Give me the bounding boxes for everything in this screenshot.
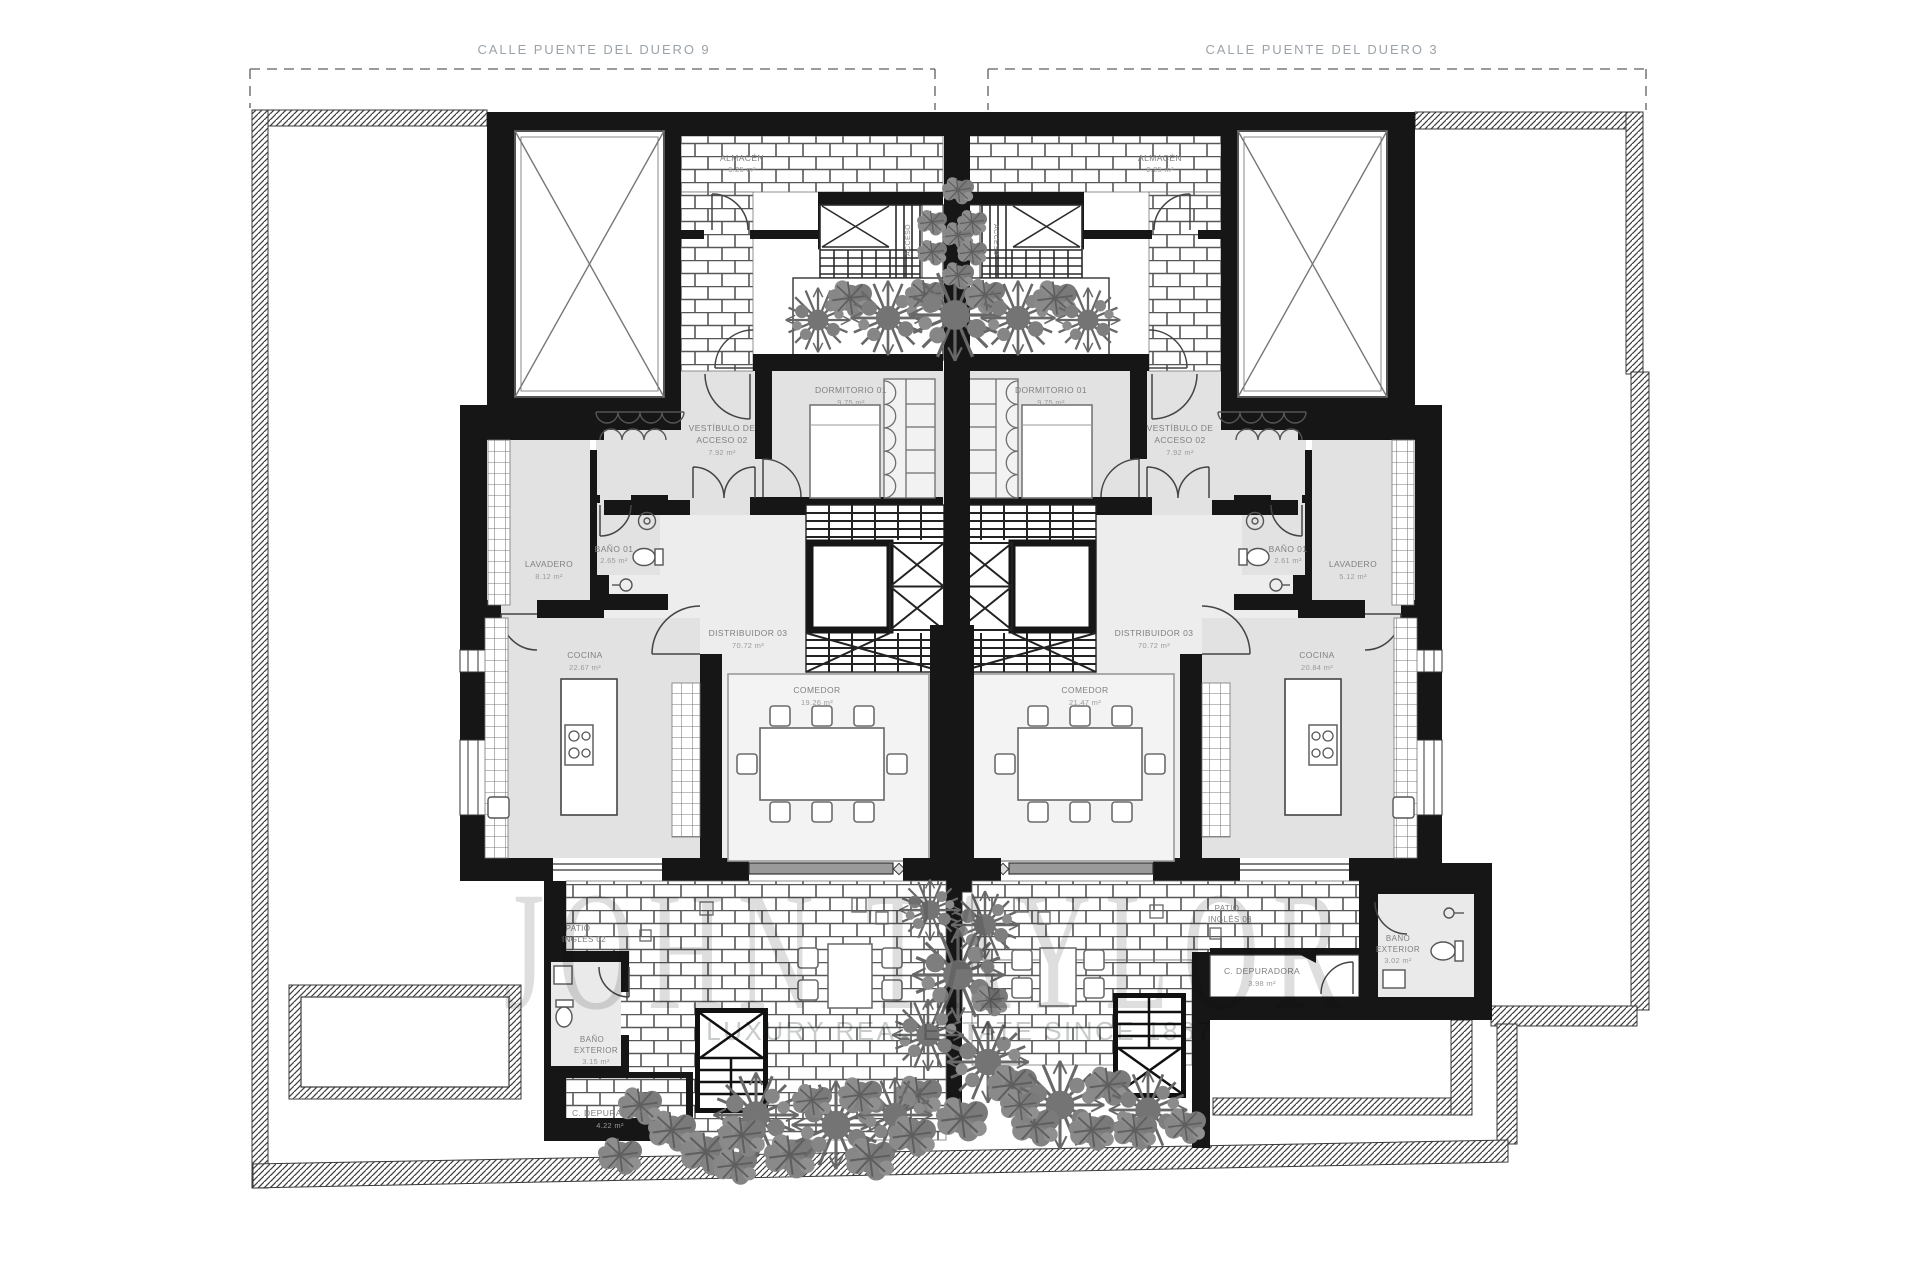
svg-text:3.15 m²: 3.15 m² bbox=[582, 1057, 610, 1066]
svg-text:ALMACÉN: ALMACÉN bbox=[720, 153, 764, 163]
svg-text:7.92 m²: 7.92 m² bbox=[1166, 448, 1194, 457]
svg-text:22.67 m²: 22.67 m² bbox=[569, 663, 601, 672]
svg-text:ALMACÉN: ALMACÉN bbox=[1138, 153, 1182, 163]
svg-text:20.84 m²: 20.84 m² bbox=[1301, 663, 1333, 672]
svg-text:19.26 m²: 19.26 m² bbox=[801, 698, 833, 707]
svg-text:4.22 m²: 4.22 m² bbox=[596, 1121, 624, 1130]
svg-text:C. DEPURADORA: C. DEPURADORA bbox=[572, 1108, 648, 1118]
svg-text:9.25 m²: 9.25 m² bbox=[728, 165, 756, 174]
svg-text:21.47 m²: 21.47 m² bbox=[1069, 698, 1101, 707]
svg-text:ACCESO: ACCESO bbox=[992, 224, 999, 256]
svg-text:COCINA: COCINA bbox=[567, 650, 602, 660]
svg-text:ACCESO 02: ACCESO 02 bbox=[696, 435, 747, 445]
svg-text:DISTRIBUIDOR 03: DISTRIBUIDOR 03 bbox=[709, 628, 788, 638]
svg-text:9.75 m²: 9.75 m² bbox=[1037, 398, 1065, 407]
svg-text:BAÑO 01: BAÑO 01 bbox=[595, 544, 634, 554]
svg-text:VESTÍBULO DE: VESTÍBULO DE bbox=[1147, 423, 1214, 433]
svg-text:COMEDOR: COMEDOR bbox=[1061, 685, 1108, 695]
svg-text:70.72 m²: 70.72 m² bbox=[1138, 641, 1170, 650]
svg-text:BAÑO 01: BAÑO 01 bbox=[1269, 544, 1308, 554]
svg-text:LUXURY REAL ESTATE SINCE 1867: LUXURY REAL ESTATE SINCE 1867 bbox=[706, 1016, 1213, 1046]
svg-text:70.72 m²: 70.72 m² bbox=[732, 641, 764, 650]
svg-text:EXTERIOR: EXTERIOR bbox=[574, 1046, 618, 1055]
svg-text:LAVADERO: LAVADERO bbox=[1329, 559, 1377, 569]
svg-text:3.02 m²: 3.02 m² bbox=[1384, 956, 1412, 965]
svg-text:8.12 m²: 8.12 m² bbox=[535, 572, 563, 581]
svg-text:LAVADERO: LAVADERO bbox=[525, 559, 573, 569]
svg-text:EXTERIOR: EXTERIOR bbox=[1376, 945, 1420, 954]
svg-text:CALLE PUENTE DEL DUERO 3: CALLE PUENTE DEL DUERO 3 bbox=[1206, 42, 1439, 57]
svg-text:DORMITORIO 01: DORMITORIO 01 bbox=[815, 385, 887, 395]
svg-text:ACCESO 02: ACCESO 02 bbox=[1154, 435, 1205, 445]
svg-text:DORMITORIO 01: DORMITORIO 01 bbox=[1015, 385, 1087, 395]
svg-text:BAÑO: BAÑO bbox=[1386, 934, 1410, 943]
svg-text:2.61 m²: 2.61 m² bbox=[1274, 556, 1302, 565]
svg-text:DISTRIBUIDOR 03: DISTRIBUIDOR 03 bbox=[1115, 628, 1194, 638]
svg-text:VESTÍBULO DE: VESTÍBULO DE bbox=[689, 423, 756, 433]
svg-text:7.92 m²: 7.92 m² bbox=[708, 448, 736, 457]
svg-text:COCINA: COCINA bbox=[1299, 650, 1334, 660]
svg-text:ACCESO: ACCESO bbox=[905, 224, 912, 256]
svg-text:COMEDOR: COMEDOR bbox=[793, 685, 840, 695]
svg-text:5.12 m²: 5.12 m² bbox=[1339, 572, 1367, 581]
svg-text:CALLE PUENTE DEL DUERO 9: CALLE PUENTE DEL DUERO 9 bbox=[478, 42, 711, 57]
svg-text:9.75 m²: 9.75 m² bbox=[837, 398, 865, 407]
svg-text:2.65 m²: 2.65 m² bbox=[600, 556, 628, 565]
svg-text:9.25 m²: 9.25 m² bbox=[1146, 165, 1174, 174]
